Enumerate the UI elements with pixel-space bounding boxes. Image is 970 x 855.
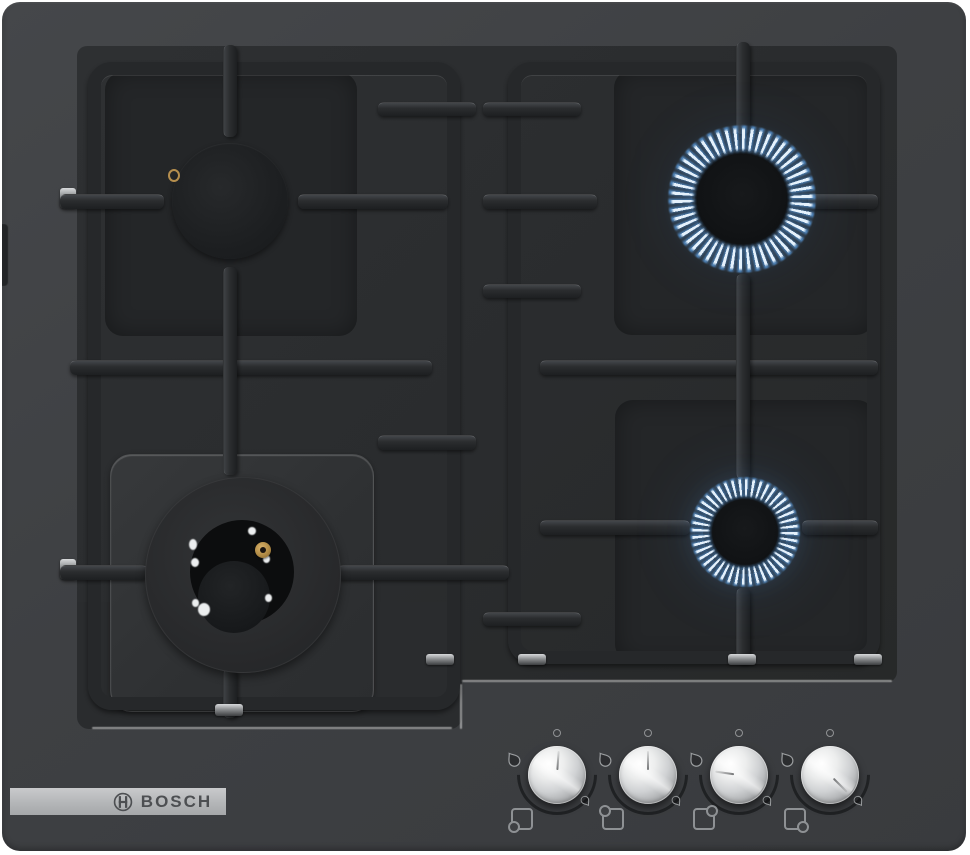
hob-body: BOSCH [2,2,966,851]
burner-position-top-right-icon [693,808,715,830]
knob-group-4 [782,727,878,829]
burner-position-top-left-icon [602,808,624,830]
off-position-dot-icon [644,729,652,737]
flame-ring-core-top-right [670,127,814,271]
grate-bar [483,194,597,209]
grate-bar [483,102,581,116]
position-dot [508,821,520,833]
grate-foot [426,654,454,665]
control-knob-bottom-right-burner[interactable] [801,746,859,804]
glass-edge-highlight [460,684,462,729]
grate-foot [518,654,546,665]
control-knob-top-right-burner[interactable] [710,746,768,804]
knob-pointer [619,746,677,804]
grate-bar [223,267,237,475]
grate-bar [378,102,476,116]
knob-group-3 [691,727,787,829]
knob-group-2 [600,727,696,829]
flame-ring-core-bottom-right [691,478,799,586]
grate-bar [60,565,148,580]
grate-bar [378,435,476,450]
control-knob-top-left-burner[interactable] [619,746,677,804]
reflection-glint [265,594,272,602]
glass-edge-highlight [92,727,452,729]
grate-bar [540,520,690,535]
burner-position-bottom-left-icon [511,808,533,830]
wok-burner-cap [198,561,270,633]
product-photo-bosch-gas-hob: BOSCH [0,0,970,855]
bosch-circle-h-icon [112,791,134,813]
grate-bar [70,360,432,375]
position-dot [706,805,718,817]
grate-bar [802,520,878,535]
grate-bar [540,360,878,375]
grate-bar [736,588,750,664]
off-position-dot-icon [735,729,743,737]
grate-bar [223,45,237,137]
position-dot [599,805,611,817]
position-dot [797,821,809,833]
grate-foot [854,654,882,665]
knob-group-1 [509,727,605,829]
igniter-top-left [168,169,180,182]
igniter-wok [255,542,271,558]
grate-foot [728,654,756,665]
brand-name: BOSCH [141,793,212,810]
brand-strip: BOSCH [10,788,226,815]
grate-bar [298,194,448,209]
grate-bar [337,565,509,580]
grate-bar [60,194,164,209]
grate-foot [215,704,243,716]
off-position-dot-icon [553,729,561,737]
reflection-glint [248,527,256,535]
control-knob-wok-burner[interactable] [528,746,586,804]
grate-bar [483,284,581,298]
burner-cap-top-left [172,143,288,259]
grate-bar [736,274,750,479]
knob-pointer [526,744,588,806]
side-fitting [2,224,9,286]
burner-position-bottom-right-icon [784,808,806,830]
grate-bar [736,42,750,134]
knob-pointer [706,742,772,808]
glass-edge-highlight [462,680,892,682]
reflection-glint [198,603,210,616]
grate-bar [808,194,878,209]
reflection-glint [191,558,199,567]
reflection-glint [189,539,197,550]
grate-bar [483,612,581,626]
